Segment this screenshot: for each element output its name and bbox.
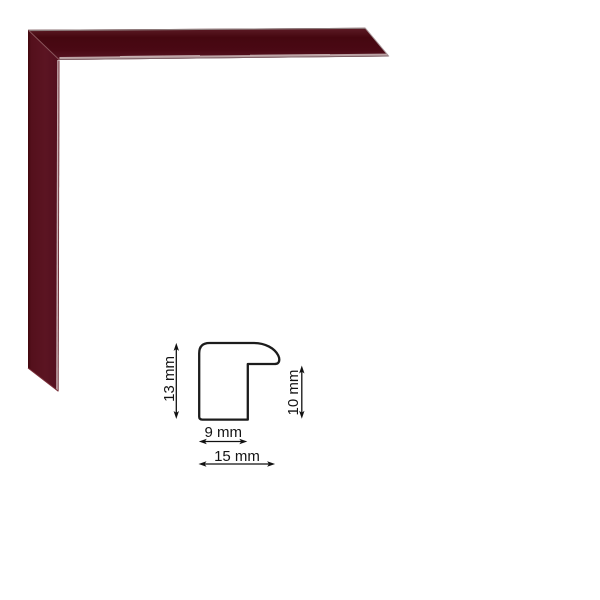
- svg-text:15 mm: 15 mm: [214, 448, 260, 465]
- svg-text:13 mm: 13 mm: [161, 356, 178, 402]
- svg-text:9 mm: 9 mm: [205, 424, 243, 441]
- svg-text:10 mm: 10 mm: [285, 370, 302, 416]
